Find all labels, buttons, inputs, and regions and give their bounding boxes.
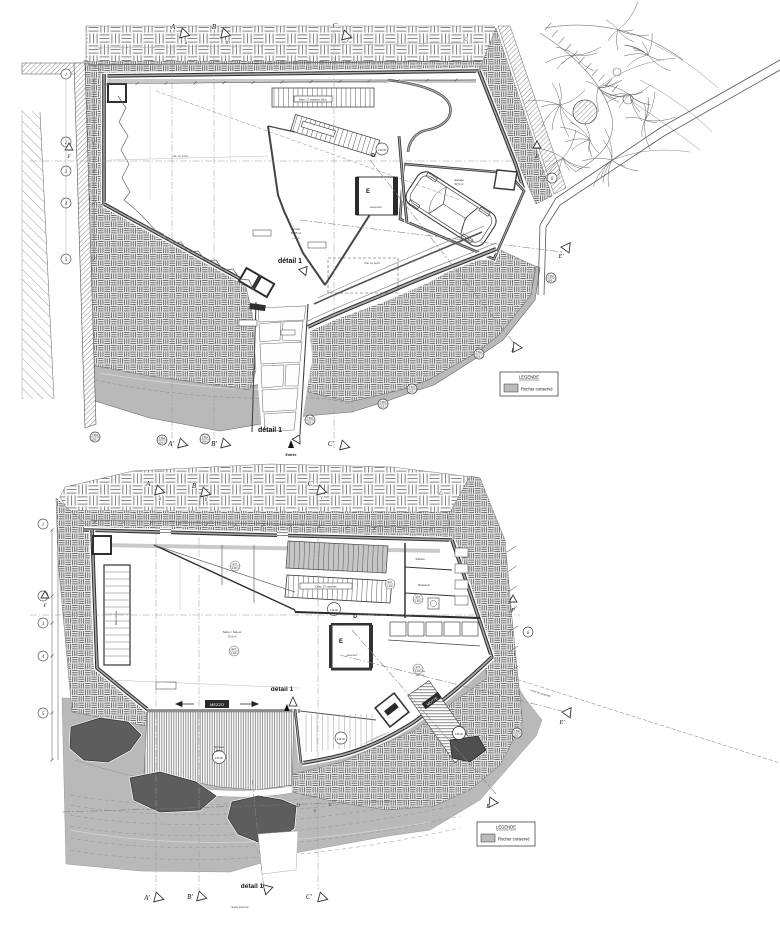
svg-text:Grotte: Grotte [292, 227, 301, 231]
svg-text:C': C' [306, 893, 313, 901]
svg-text:63.5 m²: 63.5 m² [455, 182, 464, 186]
svg-text:P: P [510, 608, 515, 614]
svg-text:159.1: 159.1 [513, 733, 521, 737]
svg-text:Rocher conservé: Rocher conservé [521, 387, 553, 392]
svg-text:Terrasse: Terrasse [214, 745, 225, 749]
svg-text:TRA: TRA [307, 416, 313, 420]
svg-text:2.40m: 2.40m [232, 567, 239, 570]
svg-text:Salon / Séjour: Salon / Séjour [223, 630, 242, 634]
svg-text:159.1: 159.1 [379, 404, 387, 408]
svg-text:G: G [464, 38, 468, 43]
svg-text:TRA: TRA [92, 433, 98, 437]
svg-text:EXT: EXT [416, 596, 421, 599]
svg-text:70.4 m²: 70.4 m² [228, 635, 237, 639]
svg-text:139.00: 139.00 [337, 737, 345, 741]
svg-text:C': C' [328, 440, 335, 448]
svg-text:Bibliothèque: Bibliothèque [114, 610, 118, 625]
svg-text:MEZZO: MEZZO [210, 702, 224, 707]
svg-text:139.00: 139.00 [378, 148, 386, 152]
svg-text:1: 1 [42, 523, 45, 528]
svg-text:84.05 m²: 84.05 m² [291, 231, 301, 235]
svg-text:EXT: EXT [388, 581, 393, 584]
svg-text:159.1: 159.1 [201, 439, 209, 443]
svg-text:E': E' [559, 720, 566, 726]
svg-text:2.40m: 2.40m [387, 585, 394, 588]
svg-text:D: D [371, 153, 375, 159]
svg-text:LEGENDE: LEGENDE [496, 825, 516, 830]
svg-text:D: D [295, 804, 300, 809]
svg-text:Toilettes: Toilettes [415, 557, 425, 561]
svg-text:Vide sur jardin: Vide sur jardin [364, 261, 381, 265]
svg-text:Desc. 17 marches: Desc. 17 marches [316, 585, 338, 589]
svg-text:6: 6 [329, 802, 331, 807]
svg-text:Entrée: Entrée [286, 453, 297, 457]
svg-text:A': A' [143, 894, 150, 902]
svg-text:B: B [192, 481, 197, 490]
svg-text:Rocher conservé: Rocher conservé [498, 837, 530, 842]
svg-text:Buanderie: Buanderie [418, 583, 430, 587]
svg-text:139.00: 139.00 [455, 732, 463, 736]
svg-text:TRA: TRA [476, 350, 482, 354]
svg-text:A': A' [167, 440, 174, 448]
svg-text:détail 1: détail 1 [278, 258, 302, 265]
svg-text:Sortie piétonne: Sortie piétonne [231, 905, 249, 909]
svg-text:E': E' [558, 254, 565, 260]
svg-text:A: A [145, 479, 151, 488]
svg-text:E: E [339, 639, 343, 645]
svg-text:A: A [170, 22, 176, 31]
svg-text:ascenseur: ascenseur [370, 205, 382, 209]
svg-text:EXT: EXT [416, 666, 421, 669]
svg-text:159.1: 159.1 [547, 278, 555, 282]
svg-text:159.1: 159.1 [475, 354, 483, 358]
svg-text:TRA: TRA [548, 274, 554, 278]
svg-text:159.1: 159.1 [158, 440, 166, 444]
svg-text:TRA: TRA [409, 385, 415, 389]
svg-text:F: F [42, 603, 47, 609]
svg-text:2.40m: 2.40m [231, 652, 238, 655]
svg-text:58 m²: 58 m² [216, 750, 222, 753]
svg-text:1: 1 [65, 73, 68, 78]
svg-text:LEGENDE: LEGENDE [519, 375, 539, 380]
svg-text:TRA: TRA [202, 435, 208, 439]
svg-text:159.1: 159.1 [408, 389, 416, 393]
svg-text:G: G [439, 492, 443, 497]
svg-text:E: E [366, 189, 370, 195]
svg-text:B': B' [211, 440, 217, 448]
svg-text:+-deux: +-deux [292, 237, 300, 240]
svg-text:Vide sur grotte: Vide sur grotte [172, 154, 189, 158]
svg-text:159.1: 159.1 [306, 420, 314, 424]
svg-text:6: 6 [314, 808, 316, 813]
svg-text:Mont. 17 marches 18cm: Mont. 17 marches 18cm [299, 98, 327, 102]
svg-text:139.00: 139.00 [330, 608, 338, 612]
svg-text:B: B [212, 22, 217, 31]
svg-text:TRA: TRA [514, 729, 520, 733]
svg-text:détail 1: détail 1 [241, 883, 264, 890]
svg-text:2.40m: 2.40m [415, 600, 422, 603]
svg-text:EXT: EXT [232, 648, 237, 651]
svg-text:TRA: TRA [159, 436, 165, 440]
svg-text:F: F [66, 154, 71, 160]
svg-text:TRA: TRA [380, 400, 386, 404]
svg-text:Garage: Garage [454, 178, 464, 182]
svg-text:2.40m: 2.40m [415, 670, 422, 673]
svg-text:P: P [534, 154, 539, 160]
svg-text:139.00: 139.00 [215, 756, 223, 760]
svg-text:159.1: 159.1 [91, 437, 99, 441]
svg-text:ascenseur: ascenseur [346, 654, 357, 657]
svg-text:détail 1: détail 1 [258, 427, 282, 434]
svg-text:B': B' [187, 893, 193, 901]
svg-text:EXT: EXT [233, 563, 238, 566]
